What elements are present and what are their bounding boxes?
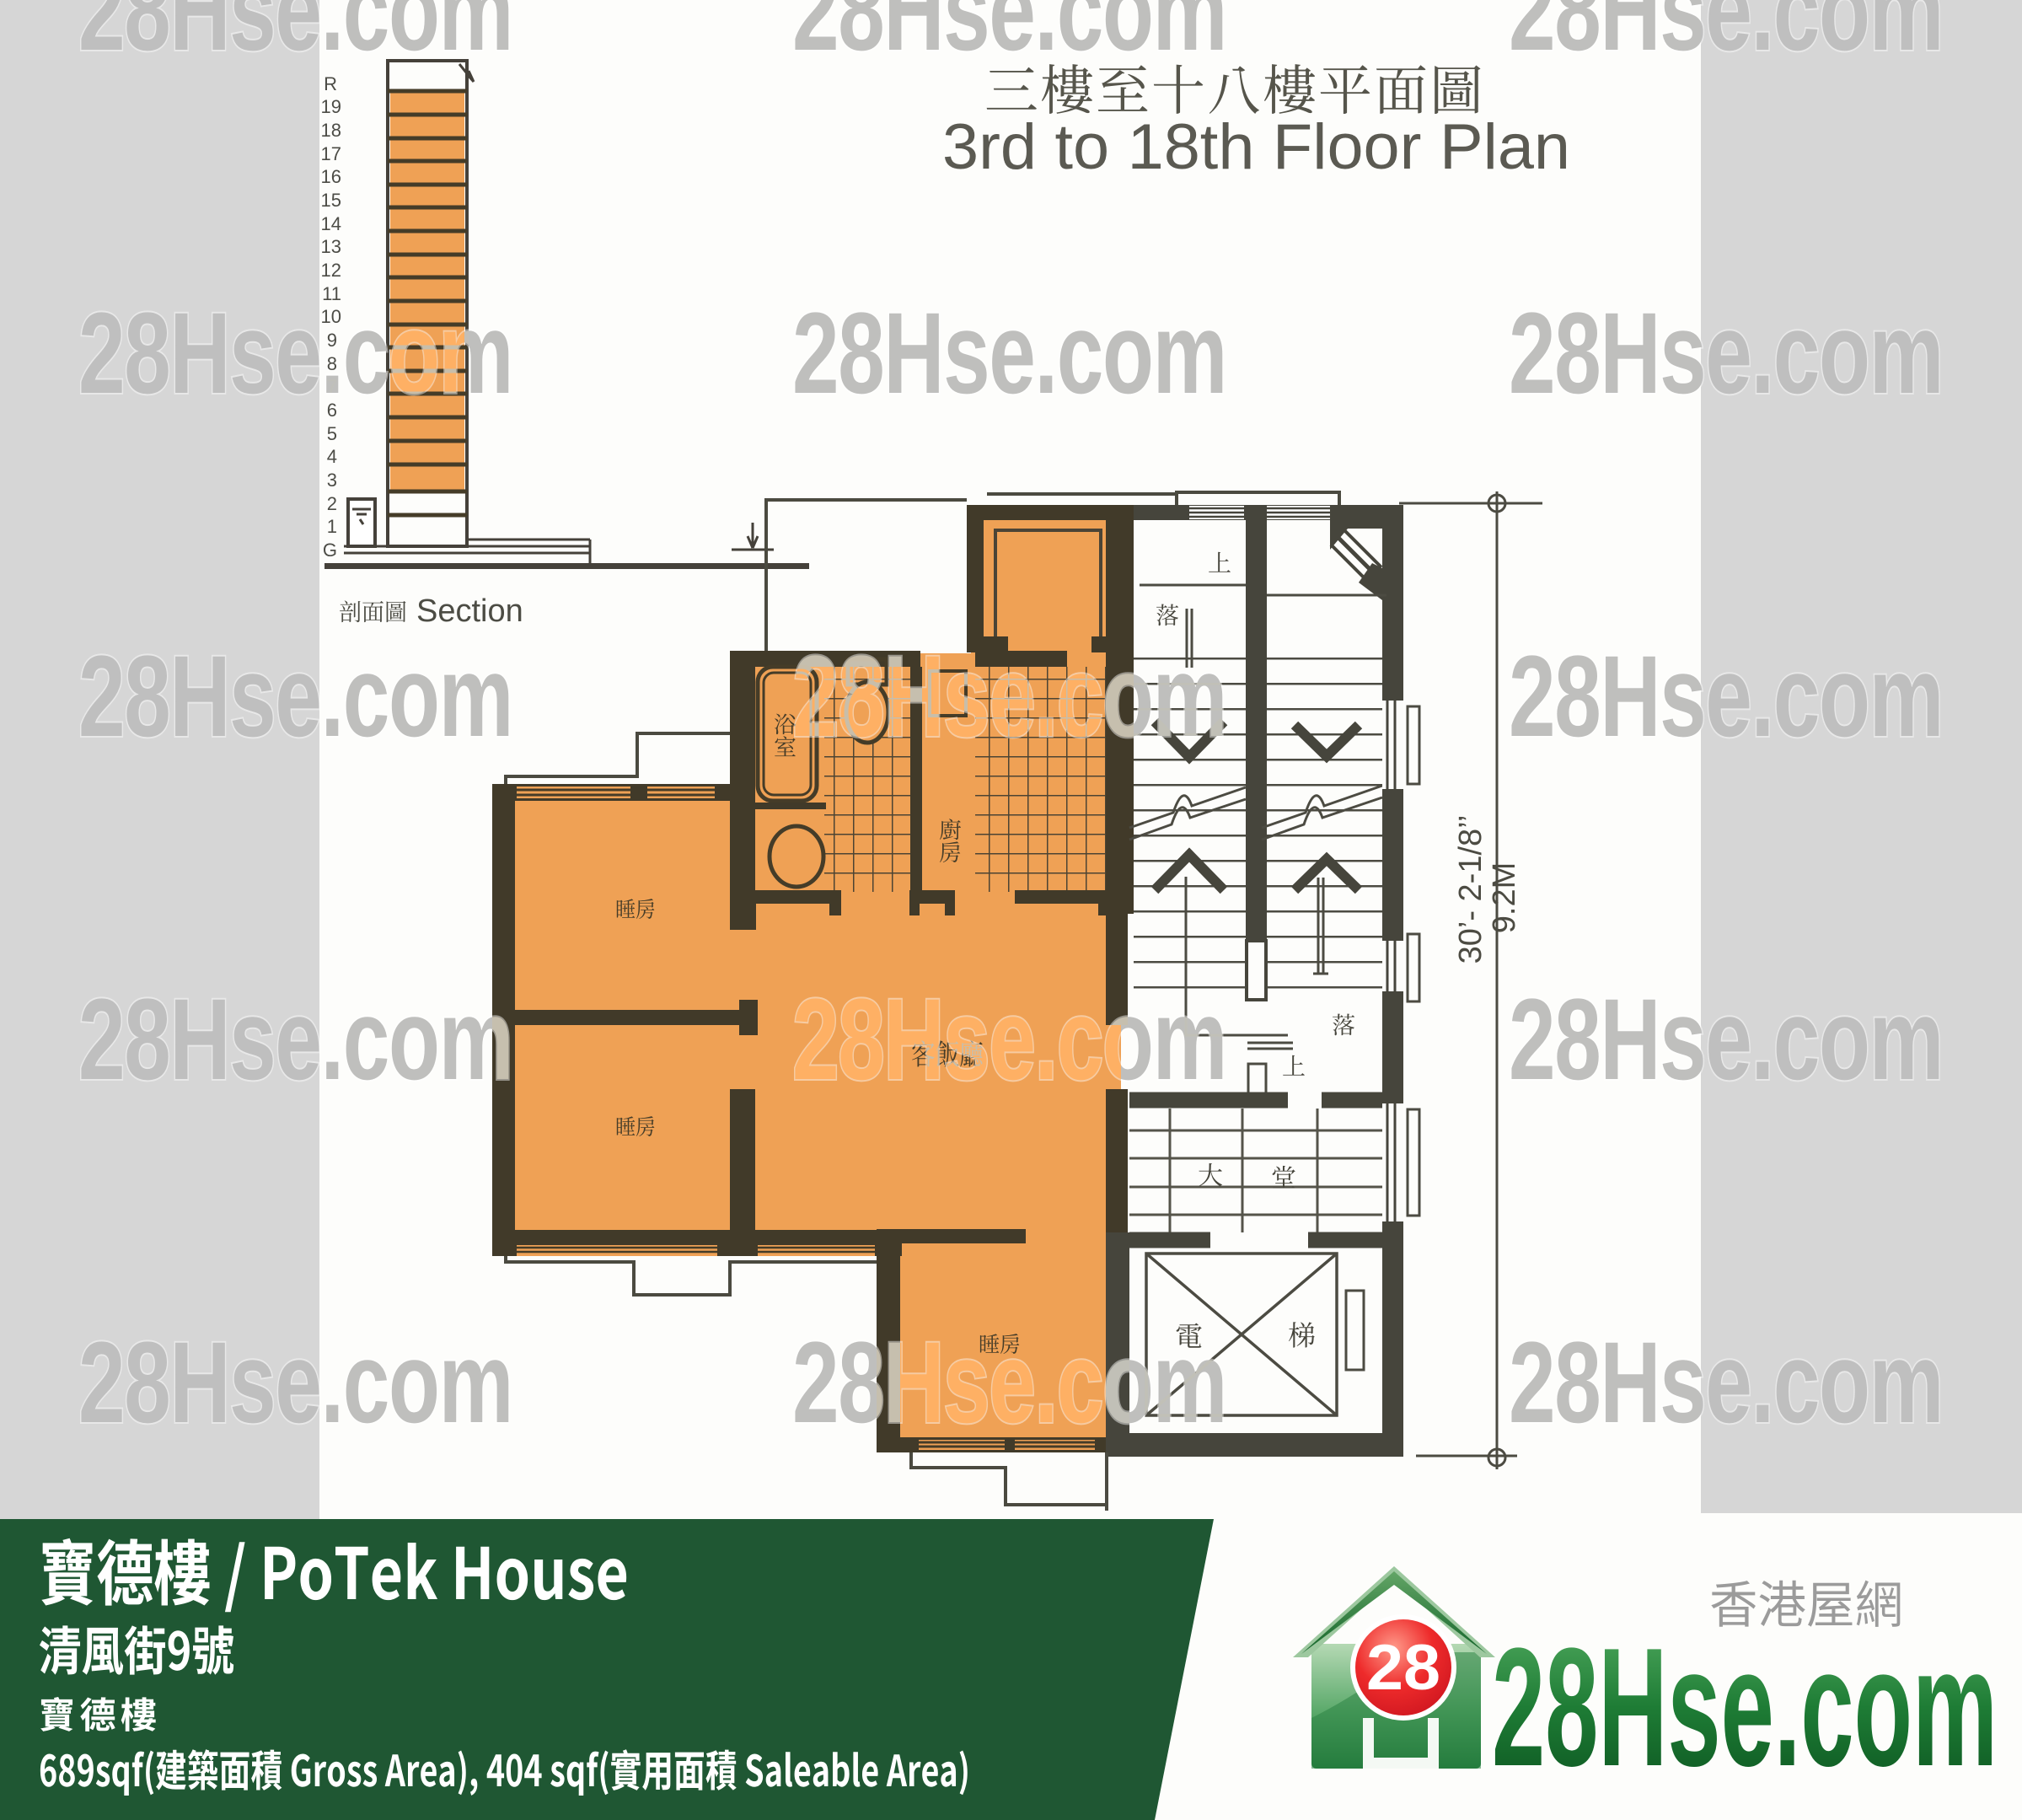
svg-text:28Hse.com: 28Hse.com [792, 1318, 1226, 1447]
svg-text:28Hse.com: 28Hse.com [1509, 0, 1943, 75]
svg-text:28Hse.com: 28Hse.com [78, 632, 512, 761]
svg-text:28: 28 [1366, 1632, 1440, 1704]
svg-text:28Hse.com: 28Hse.com [792, 289, 1226, 418]
svg-text:28Hse.com: 28Hse.com [78, 1318, 512, 1447]
svg-text:12: 12 [321, 260, 341, 281]
svg-text:9.2M: 9.2M [1487, 862, 1522, 933]
svg-text:R: R [324, 73, 337, 94]
svg-text:3: 3 [327, 470, 337, 491]
svg-text:28Hse.com: 28Hse.com [1492, 1613, 1998, 1801]
svg-text:16: 16 [321, 166, 341, 187]
svg-text:5: 5 [327, 423, 337, 444]
svg-text:17: 17 [321, 143, 341, 164]
svg-text:Section: Section [416, 593, 523, 629]
svg-text:28Hse.com: 28Hse.com [78, 289, 512, 418]
svg-text:28Hse.com: 28Hse.com [78, 975, 512, 1104]
svg-text:28Hse.com: 28Hse.com [1509, 975, 1943, 1104]
svg-text:28Hse.com: 28Hse.com [1509, 632, 1943, 761]
svg-text:18: 18 [321, 120, 341, 141]
svg-text:1: 1 [327, 516, 337, 537]
svg-text:28Hse.com: 28Hse.com [1509, 1318, 1943, 1447]
svg-text:19: 19 [321, 96, 341, 117]
svg-text:28Hse.com: 28Hse.com [1509, 289, 1943, 418]
svg-text:28Hse.com: 28Hse.com [792, 0, 1226, 75]
svg-text:4: 4 [327, 446, 337, 467]
svg-text:15: 15 [321, 190, 341, 211]
svg-text:30’- 2-1/8’’: 30’- 2-1/8’’ [1453, 815, 1488, 964]
svg-text:13: 13 [321, 236, 341, 257]
svg-text:28Hse.com: 28Hse.com [78, 0, 512, 75]
svg-text:3rd to 18th Floor Plan: 3rd to 18th Floor Plan [942, 111, 1570, 183]
svg-text:G: G [323, 540, 337, 561]
svg-text:14: 14 [321, 213, 341, 234]
svg-text:28Hse.com: 28Hse.com [792, 632, 1226, 761]
svg-text:2: 2 [327, 493, 337, 514]
svg-text:28Hse.com: 28Hse.com [792, 975, 1226, 1104]
